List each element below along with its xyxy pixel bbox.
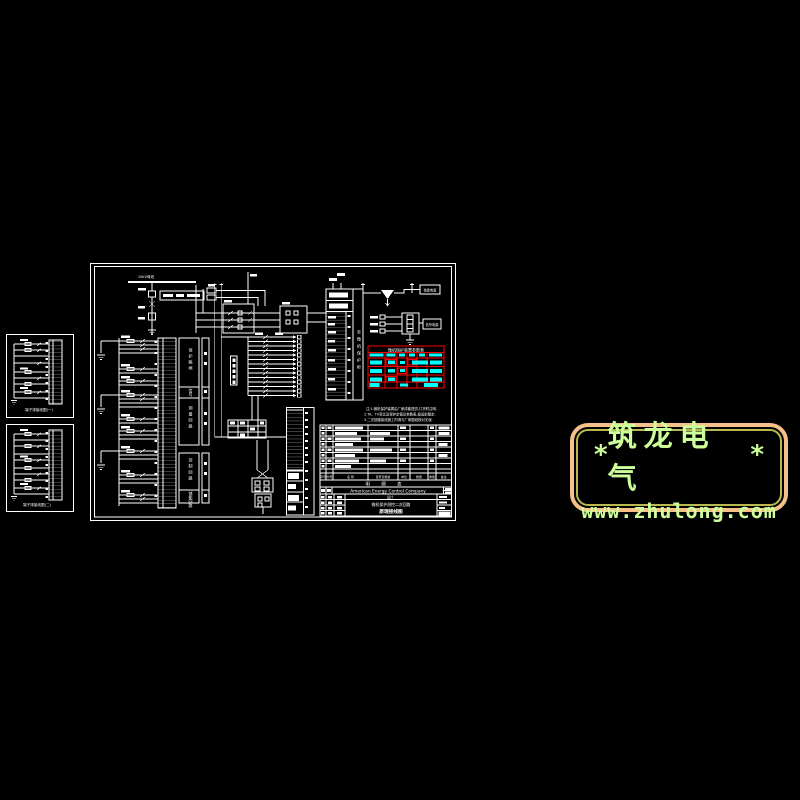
zhulong-logo-inner-border: * 筑龙电气 * www.zhulong.com (576, 429, 782, 506)
schematic-svg: 10kV母线 装置电源 (0, 0, 800, 800)
right-terminal-strip: 至微机保护柜 (326, 273, 363, 400)
lower-strip-table (287, 408, 315, 516)
mt-header-1: 代号 (327, 474, 333, 479)
cad-screenshot: 10kV母线 装置电源 (0, 0, 800, 800)
left-box2-caption: 端子排接线图(二) (23, 502, 52, 507)
mt-header-7: 备注 (441, 474, 447, 479)
material-table: 序号 代号 名 称 型号及规格 单位 数量 重量 备注 明 细 表 (320, 425, 452, 487)
company-name: American Energy Control Company (350, 489, 426, 495)
left-section-label-5: 储能回路 (189, 490, 194, 508)
left-section-label-2: 信号 (189, 387, 194, 397)
zhulong-brand-row: * 筑龙电气 * (578, 413, 780, 497)
detail-table-title: 明 细 表 (366, 480, 407, 487)
title-block: American Energy Control Company 设计 微机保护测… (320, 487, 452, 516)
connector-detail (252, 440, 273, 514)
asterisk-left-icon: * (594, 440, 608, 470)
aux-box-label: 信号电源 (426, 322, 440, 327)
drawing-title-line1: 微机保护测控二次回路 (372, 502, 411, 507)
mt-header-6: 重量 (429, 474, 435, 479)
incoming-line-diagram: 10kV母线 (128, 274, 204, 335)
mt-header-2: 名 称 (347, 474, 354, 479)
busbar-label: 10kV母线 (138, 274, 155, 279)
left-box1-caption: 端子排接线图(一) (25, 407, 54, 412)
control-circuit-top (196, 272, 326, 333)
red-table-title: 微机保护装置参数表 (388, 347, 424, 353)
red-parameter-table: 微机保护装置参数表 (368, 346, 444, 388)
terminal-box-2: 端子排接线图(二) (7, 425, 74, 512)
mt-header-0: 序号 (320, 474, 326, 479)
terminal-box-1: 端子排接线图(一) (7, 335, 74, 418)
left-wiring-section: 保护跳闸 信号 测量回路 控制回路 储能回路 (97, 336, 209, 509)
zhulong-url: www.zhulong.com (578, 499, 780, 523)
mt-header-5: 数量 (416, 474, 422, 479)
note-line-3: 3.二次回路接线施工时请与厂家图纸核对无误. (364, 417, 433, 422)
drawing-title-line2: 原理接线图 (379, 508, 403, 515)
mt-header-3: 型号及规格 (376, 474, 391, 479)
note-line-1: 注:1.微机保护装置由厂家成套提供,订货时注明. (366, 406, 437, 411)
pt-power-group: 装置电源 信号电源 (361, 283, 441, 344)
red-notes: 注:1.微机保护装置由厂家成套提供,订货时注明. 2.TA、TV变比及保护定值见… (364, 406, 437, 422)
asterisk-right-icon: * (750, 440, 764, 470)
mt-header-4: 单位 (401, 474, 407, 479)
left-section-label-1: 保护跳闸 (189, 347, 194, 372)
project-label: 设计 (387, 495, 394, 500)
zhulong-brand: 筑龙电气 (608, 413, 751, 497)
left-section-label-3: 测量回路 (189, 405, 194, 430)
note-line-2: 2.TA、TV变比及保护定值见参数表,投运前整定. (364, 412, 436, 417)
zhulong-logo: * 筑龙电气 * www.zhulong.com (570, 423, 788, 512)
right-strip-side-label: 至微机保护柜 (357, 330, 362, 372)
pt-box-label: 装置电源 (424, 288, 438, 293)
left-section-label-4: 控制回路 (189, 457, 194, 482)
